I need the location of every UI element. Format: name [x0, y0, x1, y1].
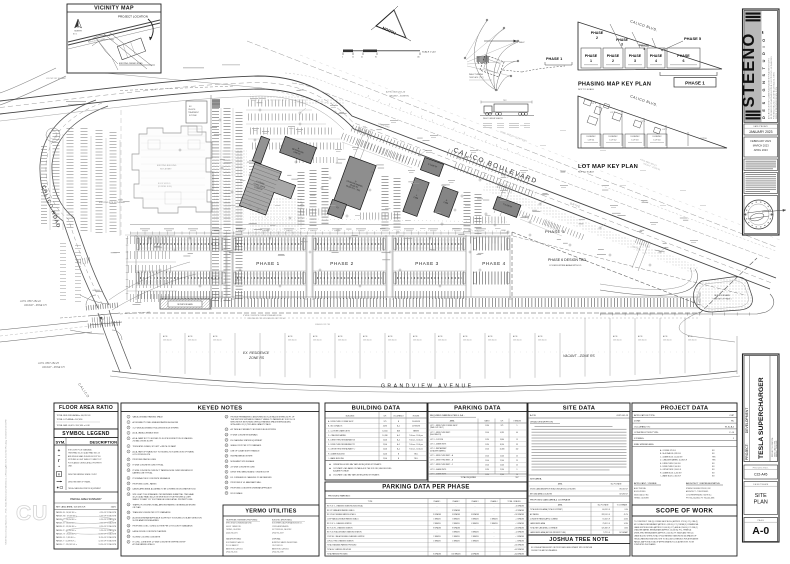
svg-text:24" WIDE CONCRETE CURB: 24" WIDE CONCRETE CURB: [231, 466, 256, 468]
svg-text:JANUARY 2023: JANUARY 2023: [749, 130, 773, 134]
svg-text:PARKING DATA: PARKING DATA: [454, 405, 501, 411]
svg-text:SCOPE OF WORK: SCOPE OF WORK: [656, 508, 713, 515]
svg-text:YERMO, CA 92398: YERMO, CA 92398: [226, 528, 241, 531]
svg-text:71,010 S.F.: 71,010 S.F.: [602, 518, 610, 520]
svg-text:PHASE 1: PHASE 1: [685, 80, 705, 85]
svg-text:2-LSE24C: 2-LSE24C: [652, 136, 662, 138]
svg-text:2: 2: [596, 36, 598, 40]
svg-text:APPLICANT / OWNER:: APPLICANT / OWNER:: [634, 482, 657, 485]
svg-text:VAN ACCESSIBLE PARKING SPACE: VAN ACCESSIBLE PARKING SPACE: [133, 416, 164, 419]
svg-text:0537-262-01: 0537-262-01: [638, 340, 647, 342]
svg-text:A.P.N.: A.P.N.: [663, 335, 668, 338]
svg-text:27: 27: [226, 450, 228, 452]
svg-text:FOOTCANDLE LEVELS AT ALL PROPE: FOOTCANDLE LEVELS AT ALL PROPERTY: [68, 461, 103, 464]
svg-text:0537-262-01: 0537-262-01: [188, 340, 197, 342]
svg-text:BUILDING: BUILDING: [346, 416, 355, 418]
svg-text:(760) 256-2739: (760) 256-2739: [272, 552, 284, 554]
svg-text:18: 18: [128, 525, 130, 527]
svg-text:40,670 S.F.: 40,670 S.F.: [602, 509, 610, 511]
svg-text:DESCRIPTION: DESCRIPTION: [90, 440, 117, 445]
svg-text:G - DRIVE THRU 2,500 S.F.: G - DRIVE THRU 2,500 S.F.: [660, 469, 682, 471]
svg-text:FIXTURES & LIGHT SHIELD TO MEE: FIXTURES & LIGHT SHIELD TO MEET 1CY: [68, 459, 102, 461]
svg-text:SQUARE FOOTAGE: SQUARE FOOTAGE: [333, 470, 350, 473]
svg-text:EV CHARGING STATION EQUIPMENT: EV CHARGING STATION EQUIPMENT: [231, 439, 264, 442]
svg-text:COVER ENTIRE AREA WITH D5: COVER ENTIRE AREA WITH D5: [549, 264, 582, 267]
svg-text:SPECTRUM COMMUNICATIONS: SPECTRUM COMMUNICATIONS: [226, 522, 252, 525]
svg-text:BOOK WORLD: BOOK WORLD: [634, 491, 646, 493]
svg-text:1: 1: [590, 59, 592, 63]
svg-text:STEENO: STEENO: [740, 32, 758, 107]
svg-text:A-2: A-2: [397, 439, 400, 442]
svg-text:PHASE 5: PHASE 5: [684, 36, 702, 41]
svg-text:PHASE 1: PHASE 1: [256, 261, 280, 266]
svg-text:SLOPE AWAY FROM ADA PATH: SLOPE AWAY FROM ADA PATH: [133, 519, 160, 522]
svg-text:31: 31: [226, 471, 228, 473]
svg-text:NORTH: NORTH: [74, 31, 82, 33]
svg-text:160: 160: [417, 57, 420, 59]
svg-text:AND SINGLE HEAD IN SHOE BOX ST: AND SINGLE HEAD IN SHOE BOX STYLE: [68, 455, 102, 458]
svg-text:0537-501-19: 0537-501-19: [617, 415, 629, 417]
svg-text:A - DRIVE THRU COFFEE SHOP: A - DRIVE THRU COFFEE SHOP: [328, 420, 354, 423]
svg-text:PHASE 5: PHASE 5: [545, 229, 565, 234]
svg-text:10,180: 10,180: [500, 448, 505, 450]
svg-text:SITE LIGHT POLE STANDARD.: SITE LIGHT POLE STANDARD.: [68, 449, 93, 452]
svg-text:SITE DATA: SITE DATA: [563, 405, 596, 411]
svg-text:ROCK SWALE: ROCK SWALE: [231, 492, 244, 495]
svg-text:PHASE: PHASE: [677, 54, 690, 58]
svg-text:LINE OF CLEAR SIGHT TRIANGLE: LINE OF CLEAR SIGHT TRIANGLE: [231, 449, 261, 452]
svg-text:0537-262-01: 0537-262-01: [438, 340, 447, 342]
svg-text:BARSTOW, CA 92311: BARSTOW, CA 92311: [272, 547, 289, 550]
svg-text:40: 40: [361, 57, 363, 59]
svg-text:(760) 256-2011: (760) 256-2011: [226, 552, 237, 554]
svg-text:A.P.N.: A.P.N.: [313, 335, 318, 338]
svg-text:12.1% OF TOTAL SITE: 12.1% OF TOTAL SITE: [99, 539, 117, 542]
svg-text:TOTAL REQUIRED: TOTAL REQUIRED: [460, 476, 476, 479]
svg-text:10: 10: [128, 470, 130, 472]
svg-text:YERMO, CA 92398: YERMO, CA 92398: [634, 497, 649, 500]
svg-text:RETENTION BASIN: RETENTION BASIN: [177, 303, 193, 306]
svg-text:100%: 100%: [111, 507, 116, 509]
svg-text:TESLA CHARGING STATIONS. SITE: TESLA CHARGING STATIONS. SITE TO INCLUDE…: [634, 537, 699, 540]
svg-text:0537-262-01: 0537-262-01: [213, 340, 222, 342]
svg-text:2: 2: [612, 59, 614, 63]
svg-text:TRAFFIC FLOW DIRECTIONAL ARROW: TRAFFIC FLOW DIRECTIONAL ARROWS PAINTED …: [133, 503, 197, 506]
svg-text:7:00 am - 11:00 pm: 7:00 am - 11:00 pm: [409, 440, 423, 442]
svg-text:0537-262-01: 0537-262-01: [363, 340, 372, 342]
svg-text:STEENO DESIGN STUDIO, INC.: STEENO DESIGN STUDIO, INC.: [686, 488, 712, 490]
svg-text:A-2: A-2: [397, 425, 400, 428]
svg-text:14: 14: [128, 494, 130, 496]
svg-text:0537-262-01: 0537-262-01: [488, 340, 497, 342]
svg-text:13: 13: [128, 489, 130, 491]
svg-text:©2023 Steeno Design Studios In: ©2023 Steeno Design Studios Inc. - Path …: [5, 419, 8, 545]
svg-text:30: 30: [226, 466, 228, 468]
svg-text:B - MC DONALD'S: B - MC DONALD'S: [328, 425, 343, 428]
svg-text:SITE AREA: SITE AREA: [530, 478, 542, 481]
svg-text:MC. DONALDS RESTAURANT (APPROX: MC. DONALDS RESTAURANT (APPROX. 4,395 SQ…: [634, 523, 699, 526]
svg-text:LOT MAP KEY PLAN: LOT MAP KEY PLAN: [578, 164, 638, 170]
svg-text:REQUIRED PARKING PER G.F.A. :: REQUIRED PARKING PER G.F.A. :: [430, 414, 465, 417]
svg-text:8" WIDE CONCRETE CURB TYPICAL: 8" WIDE CONCRETE CURB TYPICAL: [133, 464, 164, 467]
svg-text:ON YOUR LN: ON YOUR LN: [272, 545, 283, 547]
svg-text:PHASING MAP KEY PLAN: PHASING MAP KEY PLAN: [578, 82, 651, 88]
svg-text:B - McDONALDS 4,395 S.F.: B - McDONALDS 4,395 S.F.: [660, 452, 682, 455]
svg-text:ARCHITECT / REPRESENTATIVE:: ARCHITECT / REPRESENTATIVE:: [686, 482, 721, 485]
svg-text:14.9%: 14.9%: [624, 523, 629, 525]
svg-text:PARCEL MAP FOR A TOTAL OF APPR: PARCEL MAP FOR A TOTAL OF APPROXIMATELY …: [634, 540, 695, 543]
svg-text:LOT 12: LOT 12: [610, 140, 618, 142]
svg-text:SHIELD TO MEET 1CY FOOTCANDLE: SHIELD TO MEET 1CY FOOTCANDLE LEVELS AT …: [133, 498, 194, 501]
svg-text:PHASE 2: PHASE 2: [330, 261, 354, 266]
svg-text:0537-262-01: 0537-262-01: [513, 340, 522, 342]
svg-text:8,200: 8,200: [500, 444, 504, 446]
svg-text:22: 22: [226, 416, 228, 418]
svg-text:33: 33: [226, 482, 228, 484]
svg-text:DISPOSAL:: DISPOSAL:: [272, 538, 281, 541]
svg-text:TOTAL BUILDING AREA = 40,670 S: TOTAL BUILDING AREA = 40,670 S.F.: [57, 414, 92, 417]
svg-text:13.1% OF TOTAL SITE: 13.1% OF TOTAL SITE: [99, 543, 117, 546]
svg-text:SOUTHWEST GAS CO.: SOUTHWEST GAS CO.: [226, 541, 245, 544]
svg-text:P R O J E C T N O .: P R O J E C T N O .: [753, 467, 769, 469]
svg-text:2,500: 2,500: [500, 460, 504, 462]
svg-text:EX. CURB AND EV CHARGING TO BE: EX. CURB AND EV CHARGING TO BE REMOVED: [231, 476, 273, 479]
svg-text:4.1% OF TOTAL SITE: 4.1% OF TOTAL SITE: [99, 511, 116, 514]
svg-text:ZONE RS: ZONE RS: [248, 356, 265, 360]
svg-text:I - LEASE BLDG. 2,500 S.F.: I - LEASE BLDG. 2,500 S.F.: [660, 475, 682, 478]
svg-text:NOT TO SCALE: NOT TO SCALE: [578, 88, 594, 91]
svg-text:507,496 S.F.: 507,496 S.F.: [619, 494, 628, 496]
svg-text:8' WIDE CONCRETE CURB AT STAND: 8' WIDE CONCRETE CURB AT STANDARD NOSE: [243, 314, 282, 317]
svg-text:VACANT - ZONE CH: VACANT - ZONE CH: [24, 304, 47, 307]
svg-text:A.D.A. VAN ACCESSIBLE SIGN: A.D.A. VAN ACCESSIBLE SIGN: [133, 432, 160, 435]
svg-text:I - LEASE BUILDING: I - LEASE BUILDING: [328, 457, 345, 460]
svg-text:MONUMENT SITE SIGNAGE: MONUMENT SITE SIGNAGE: [231, 460, 256, 463]
svg-text:SYSTEM: SYSTEM: [189, 115, 197, 117]
svg-text:24 HOURS: 24 HOURS: [412, 421, 420, 423]
svg-text:8" WIDE CONCRETE SIDEWALK: 8" WIDE CONCRETE SIDEWALK: [231, 433, 259, 436]
svg-text:15: 15: [516, 439, 518, 441]
svg-text:A.P.N.: A.P.N.: [638, 335, 643, 338]
svg-text:ACCESSIBILITY STALL EMBLEM PAI: ACCESSIBILITY STALL EMBLEM PAINTED AS SH…: [133, 421, 179, 424]
svg-text:102: 102: [516, 448, 519, 450]
svg-text:TRASH ENCLOSURE PER CITY STAND: TRASH ENCLOSURE PER CITY STANDARDS: [133, 511, 172, 514]
svg-text:100%: 100%: [624, 528, 629, 530]
svg-text:2,500: 2,500: [383, 444, 387, 446]
svg-text:6.1% OF TOTAL SITE: 6.1% OF TOTAL SITE: [99, 518, 116, 521]
svg-text:A.P.N.: A.P.N.: [538, 335, 543, 338]
svg-text:1:250: 1:250: [485, 444, 489, 446]
svg-text:TO CONSTRUCT ONE (1) COFFEE SH: TO CONSTRUCT ONE (1) COFFEE SHOP BLDG. (…: [634, 520, 698, 523]
svg-text:36031 CALICO RD.: 36031 CALICO RD.: [634, 493, 649, 496]
svg-text:25: 25: [516, 465, 518, 467]
svg-text:1:200: 1:200: [485, 425, 489, 427]
svg-text:PHASE 4: PHASE 4: [482, 261, 506, 266]
svg-text:975: 975: [501, 425, 504, 427]
svg-text:LOT 14: LOT 14: [654, 140, 662, 142]
svg-text:150 FEET OF ANY BOUNDARIES.: 150 FEET OF ANY BOUNDARIES.: [531, 549, 558, 552]
svg-text:4: 4: [655, 59, 657, 63]
svg-text:LOT 6 - DRIVE THRU REST. - B: LOT 6 - DRIVE THRU REST. - B: [430, 460, 453, 462]
svg-text:E - DRIVE THRU 2,500 S.F.: E - DRIVE THRU 2,500 S.F.: [660, 463, 682, 465]
svg-text:LOT 9: LOT 9: [610, 112, 615, 114]
svg-text:LOT 16: LOT 16: [700, 138, 708, 140]
svg-text:A.P.N.: A.P.N.: [388, 335, 393, 338]
svg-text:A.P.N.: A.P.N.: [213, 335, 218, 338]
svg-text:24 HOURS: 24 HOURS: [412, 426, 420, 428]
svg-text:PHASE: PHASE: [591, 31, 604, 35]
svg-text:21: 21: [128, 542, 130, 544]
svg-text:VACANT - ZONE CH: VACANT - ZONE CH: [42, 366, 65, 369]
svg-text:PROJECT LOCATION: PROJECT LOCATION: [118, 15, 148, 19]
svg-text:LOT 7 - DRIVE THRU REST. - C: LOT 7 - DRIVE THRU REST. - C: [430, 464, 454, 466]
svg-text:1:250: 1:250: [485, 439, 489, 441]
svg-text:0537-262-01: 0537-262-01: [688, 340, 697, 342]
svg-text:12,000: 12,000: [382, 430, 387, 432]
svg-text:RATIO: RATIO: [484, 420, 490, 423]
svg-text:LARGE ROUND CONCRETE PLANTERS: LARGE ROUND CONCRETE PLANTERS: [133, 530, 168, 533]
svg-text:2-LSE24C: 2-LSE24C: [586, 136, 596, 138]
svg-text:35: 35: [226, 493, 228, 495]
svg-text:KEYED NOTES: KEYED NOTES: [198, 405, 243, 411]
svg-text:28: 28: [226, 456, 228, 458]
svg-text:25: 25: [516, 455, 518, 457]
svg-text:ON PLAN: ON PLAN: [133, 506, 142, 509]
svg-text:EXISTING BUILDING: EXISTING BUILDING: [157, 165, 177, 167]
svg-text:0537-262-01: 0537-262-01: [613, 340, 622, 342]
svg-text:3'-0" WIDE ACCESSIBILITY ACCES: 3'-0" WIDE ACCESSIBILITY ACCESS IN BLUE …: [133, 426, 180, 429]
svg-text:CONSTRUCTION TYPE:: CONSTRUCTION TYPE:: [634, 432, 659, 434]
svg-text:OCCUPANCY'S:: OCCUPANCY'S:: [634, 425, 651, 428]
svg-text:1:250: 1:250: [485, 469, 489, 471]
svg-text:17: 17: [128, 518, 130, 520]
svg-text:80: 80: [375, 57, 377, 59]
svg-text:E - DRIVE THRU RESTAURANT 'A': E - DRIVE THRU RESTAURANT 'A': [328, 439, 356, 442]
svg-text:A-2: A-2: [397, 448, 400, 451]
svg-text:VICTORVILLE, CA 92392: VICTORVILLE, CA 92392: [272, 528, 291, 531]
svg-text:GAS (PROPOSED):: GAS (PROPOSED):: [226, 538, 242, 541]
svg-text:SCALE 1"=40': SCALE 1"=40': [422, 51, 436, 54]
svg-text:2,500: 2,500: [383, 440, 387, 442]
svg-text:4,395: 4,395: [383, 426, 387, 428]
svg-text:VICINITY MAP: VICINITY MAP: [94, 6, 134, 12]
svg-text:20: 20: [352, 57, 354, 59]
svg-text:NET LAND AREA : 507,496 S.F.: NET LAND AREA : 507,496 S.F.: [56, 506, 86, 509]
svg-text:5: 5: [517, 425, 518, 427]
svg-text:JOSHUA TREE NOTE: JOSHUA TREE NOTE: [549, 537, 609, 543]
svg-text:NOT A PART: NOT A PART: [160, 168, 172, 171]
svg-text:0537-262-01: 0537-262-01: [338, 340, 347, 342]
svg-text:LEGAL DESCRIPTION:: LEGAL DESCRIPTION:: [530, 421, 554, 424]
svg-text:D E S I G N S T U D I O ℠: D E S I G N S T U D I O ℠: [761, 29, 766, 119]
svg-text:YERMO UTILITIES: YERMO UTILITIES: [245, 509, 296, 515]
svg-text:APPLICATION TYPE:: APPLICATION TYPE:: [634, 414, 656, 417]
svg-text:2,500: 2,500: [500, 465, 504, 467]
svg-text:PROPOSED LAND AREA & COVERAGE: PROPOSED LAND AREA & COVERAGE: [530, 499, 571, 502]
svg-text:A.P.N.: A.P.N.: [463, 335, 468, 338]
svg-text:RETENTION BASIN: RETENTION BASIN: [714, 294, 730, 297]
svg-text:D - CRACKER BARREL: D - CRACKER BARREL: [328, 434, 346, 437]
svg-text:0537-262-01: 0537-262-01: [413, 340, 422, 342]
svg-text:7:00 am - 11:00 pm: 7:00 am - 11:00 pm: [409, 444, 423, 446]
svg-text:OPERATING HOURS MAY VARY AS RE: OPERATING HOURS MAY VARY AS REQUIRED BY …: [333, 463, 382, 466]
svg-text:9: 9: [517, 469, 518, 471]
svg-text:1:100: 1:100: [485, 432, 489, 434]
svg-text:0537-262-01: 0537-262-01: [163, 340, 172, 342]
svg-text:A.P.N.: A.P.N.: [438, 335, 443, 338]
svg-text:0537-262-01: 0537-262-01: [663, 340, 672, 342]
svg-text:8" NOMINAL THICK CONCRETE SIDE: 8" NOMINAL THICK CONCRETE SIDEWALKS: [133, 477, 171, 480]
svg-text:33: 33: [516, 444, 518, 446]
svg-text:SYM.: SYM.: [56, 440, 66, 445]
svg-text:7:00 am - 11:00 pm: 7:00 am - 11:00 pm: [409, 449, 423, 451]
svg-text:STORIES:: STORIES:: [634, 438, 645, 440]
svg-text:PARCEL 'C' : 26,954 S.F. =: PARCEL 'C' : 26,954 S.F. =: [56, 518, 76, 521]
svg-text:TWIN HEAD 30'-25' QUAD HEAD 36: TWIN HEAD 30'-25' QUAD HEAD 360°-25': [68, 452, 101, 455]
svg-text:DASHED LINE TYPICAL: DASHED LINE TYPICAL: [133, 471, 153, 474]
svg-text:FIRE SPRINKLERS:: FIRE SPRINKLERS:: [634, 444, 654, 446]
svg-text:A.P.N.: A.P.N.: [613, 335, 618, 338]
svg-text:ON-SITE: ON-SITE: [188, 109, 196, 111]
svg-text:4,395: 4,395: [500, 432, 504, 434]
svg-text:2-LSE24C: 2-LSE24C: [630, 136, 640, 138]
svg-text:PARCEL 'E' : 32,264 S.F. =: PARCEL 'E' : 32,264 S.F. =: [56, 525, 76, 528]
svg-text:8.1% OF TOTAL SITE: 8.1% OF TOTAL SITE: [99, 525, 116, 528]
svg-text:I-15 FWY 185' EX RAMP: I-15 FWY 185' EX RAMP: [46, 77, 67, 80]
svg-text:ZONE:: ZONE:: [634, 421, 641, 423]
svg-text:OCCUPANT LOAD MAY VARY AS REQU: OCCUPANT LOAD MAY VARY AS REQUIRED BY TE…: [333, 474, 380, 477]
svg-text:975: 975: [384, 421, 387, 423]
svg-text:FEBRUARY 2023: FEBRUARY 2023: [750, 139, 771, 143]
svg-text:C - LEASE BLDG. 12,000 S.F.: C - LEASE BLDG. 12,000 S.F.: [660, 455, 683, 458]
svg-text:3: 3: [621, 42, 623, 46]
svg-text:3: 3: [634, 59, 636, 63]
svg-text:WB-67 TURNING: WB-67 TURNING: [469, 74, 484, 76]
svg-text:ALEX TESOVA: ALEX TESOVA: [634, 487, 646, 490]
svg-text:LOT 11: LOT 11: [588, 140, 595, 142]
svg-text:WB-67 DESIGN VEHICLE: WB-67 DESIGN VEHICLE: [483, 118, 504, 120]
svg-text:10,180: 10,180: [382, 435, 387, 437]
svg-text:26: 26: [226, 445, 228, 447]
svg-text:A.P.N.: A.P.N.: [288, 335, 293, 338]
svg-text:3,800: 3,800: [500, 439, 504, 441]
svg-text:23: 23: [226, 429, 228, 431]
svg-text:A.P.N. 0537-161-13: A.P.N. 0537-161-13: [385, 91, 406, 94]
svg-text:F - DRIVE THRU RESTAURANT 'B': F - DRIVE THRU RESTAURANT 'B': [328, 443, 355, 446]
svg-text:V - B: V - B: [729, 432, 734, 434]
svg-text:PROPOSED CONCRETE DRIVEWAY APP: PROPOSED CONCRETE DRIVEWAY APPROACH: [231, 486, 273, 489]
svg-text:PHASE 6 DESIGN TBD: PHASE 6 DESIGN TBD: [548, 258, 586, 262]
svg-text:W W W . S T E E N O D E S I G: W W W . S T E E N O D E S I G N . C O M: [776, 86, 778, 119]
svg-text:45.7%: 45.7%: [624, 514, 629, 516]
svg-text:VACANT - ZONE RS: VACANT - ZONE RS: [563, 354, 595, 358]
svg-text:EXISTING YERMO ROAD: EXISTING YERMO ROAD: [119, 62, 143, 65]
svg-text:PARCEL AREA SUMMARY: PARCEL AREA SUMMARY: [70, 497, 102, 501]
svg-text:LOT 2 - DRIVE THRU REST.: LOT 2 - DRIVE THRU REST.: [430, 432, 451, 434]
svg-text:0537-262-01: 0537-262-01: [463, 340, 472, 342]
svg-text:14.0%: 14.0%: [624, 518, 629, 520]
svg-text:34: 34: [226, 487, 228, 489]
svg-text:NOT TO SCALE: NOT TO SCALE: [578, 171, 594, 174]
svg-text:A-2: A-2: [397, 443, 400, 446]
svg-text:DENOTES PARKING SPACE COUNT: DENOTES PARKING SPACE COUNT: [68, 473, 97, 476]
svg-text:TESLA CHARGING STATION EQUIPME: TESLA CHARGING STATION EQUIPMENT: [68, 487, 101, 490]
svg-text:TOTAL LOT AREA = 507,496: TOTAL LOT AREA = 507,496: [57, 418, 84, 421]
svg-text:25: 25: [516, 460, 518, 462]
svg-text:A.P.N.: A.P.N.: [163, 335, 168, 338]
svg-text:APRIL 2023: APRIL 2023: [754, 148, 768, 152]
svg-text:12353 HESPERIA RD.: 12353 HESPERIA RD.: [272, 525, 290, 528]
svg-text:TRUNCATED DOMES, 36" DEPT x WI: TRUNCATED DOMES, 36" DEPT x WIDTH OF RAM…: [133, 445, 177, 448]
svg-text:1:100: 1:100: [485, 455, 489, 457]
svg-text:PLAN: PLAN: [754, 500, 768, 506]
svg-text:EX. RESIDENCE: EX. RESIDENCE: [243, 351, 270, 355]
svg-text:C - C-STORE LEASE UNITS: C - C-STORE LEASE UNITS: [328, 429, 351, 432]
svg-text:PROJECT DATA: PROJECT DATA: [661, 405, 709, 411]
svg-text:2,200: 2,200: [383, 453, 387, 455]
svg-text:11.1% OF TOTAL SITE: 11.1% OF TOTAL SITE: [99, 536, 117, 539]
svg-text:DATE P'BLSH'D: DATE P'BLSH'D: [753, 125, 768, 128]
svg-text:LOT 13: LOT 13: [632, 140, 640, 142]
svg-text:A.P.N.: A.P.N.: [413, 335, 418, 338]
svg-text:LEASE BLDGS. WITH A TOTAL OF 6: LEASE BLDGS. WITH A TOTAL OF 624 PARKING…: [634, 535, 696, 538]
svg-text:(760) 951-3237: (760) 951-3237: [272, 532, 284, 534]
svg-text:PROJECT: DEVELOPMENT: PROJECT: DEVELOPMENT: [745, 408, 749, 460]
svg-text:0: 0: [342, 57, 343, 59]
svg-text:P A G E: P A G E: [758, 519, 765, 522]
svg-text:2% MAX CROSS SLOPE: 2% MAX CROSS SLOPE: [133, 440, 154, 443]
svg-text:19: 19: [128, 531, 130, 533]
svg-text:A.P.N.: A.P.N.: [530, 414, 536, 417]
svg-text:MARCH 2023: MARCH 2023: [753, 144, 770, 148]
svg-text:PHASE 1: PHASE 1: [546, 57, 562, 61]
svg-text:7,712 S.F.: 7,712 S.F.: [603, 532, 610, 534]
svg-text:LINE.: LINE.: [68, 466, 73, 468]
svg-text:11: 11: [128, 478, 130, 480]
svg-text:LOT 7: LOT 7: [662, 129, 667, 131]
svg-text:W, B, A-2: W, B, A-2: [725, 425, 735, 428]
svg-text:WHEEL STOP PER CITY STANDARD: WHEEL STOP PER CITY STANDARD: [231, 444, 262, 447]
svg-text:SCORED COLORED CONCRETE: SCORED COLORED CONCRETE: [133, 536, 161, 538]
svg-text:PARCEL 'A' : 20,962 S.F. =: PARCEL 'A' : 20,962 S.F. =: [56, 511, 76, 514]
svg-text:SOUTHERN CALIFORNIA EDISON CO.: SOUTHERN CALIFORNIA EDISON CO.: [272, 522, 303, 525]
svg-text:2,500: 2,500: [383, 449, 387, 451]
svg-text:A.P.N.: A.P.N.: [488, 335, 493, 338]
svg-text:PARCEL 'J' : 215,742 S.F. =: PARCEL 'J' : 215,742 S.F. =: [56, 543, 77, 546]
svg-text:16: 16: [128, 512, 130, 514]
svg-text:T.B.D.: T.B.D.: [414, 458, 419, 460]
svg-text:440 W. YERMO RD.: 440 W. YERMO RD.: [226, 526, 242, 528]
svg-text:PROPOSED CURB - PAVING: PROPOSED CURB - PAVING: [133, 482, 157, 485]
svg-text:A.P.N.: A.P.N.: [338, 335, 343, 338]
svg-text:1:100: 1:100: [485, 465, 489, 467]
svg-text:1:100: 1:100: [485, 448, 489, 450]
svg-text:PROVIDED PARKING:: PROVIDED PARKING:: [328, 495, 351, 498]
svg-text:T.B.D.: T.B.D.: [414, 453, 419, 455]
svg-text:ARCHITECT - TOM STEENO: ARCHITECT - TOM STEENO: [686, 490, 709, 493]
svg-text:N.T.S.: N.T.S.: [73, 34, 78, 36]
svg-text:(442) 256-6471: (442) 256-6471: [226, 532, 238, 534]
svg-text:HOURS: HOURS: [413, 416, 420, 418]
svg-text:0537-262-01: 0537-262-01: [288, 340, 297, 342]
svg-text:DRIVE THRU MENU BOARD / ORDER: DRIVE THRU MENU BOARD / ORDER BOOTH: [231, 471, 270, 474]
svg-text:PARCEL 'I' : 10,399 S.F. =: PARCEL 'I' : 10,399 S.F. =: [56, 539, 76, 542]
svg-text:FLOOR AREA RATIO: FLOOR AREA RATIO: [59, 405, 113, 411]
svg-text:A 3' WIDE ACCESSIBILITY ACCESS: A 3' WIDE ACCESSIBILITY ACCESS IN BLUE S…: [231, 428, 277, 431]
svg-text:EX.: EX.: [189, 106, 192, 108]
svg-text:TOTAL FAR: 40,670 / 507,496 =: TOTAL FAR: 40,670 / 507,496 = 0.08: [57, 424, 91, 427]
svg-text:75,611 S.F.: 75,611 S.F.: [603, 523, 611, 525]
